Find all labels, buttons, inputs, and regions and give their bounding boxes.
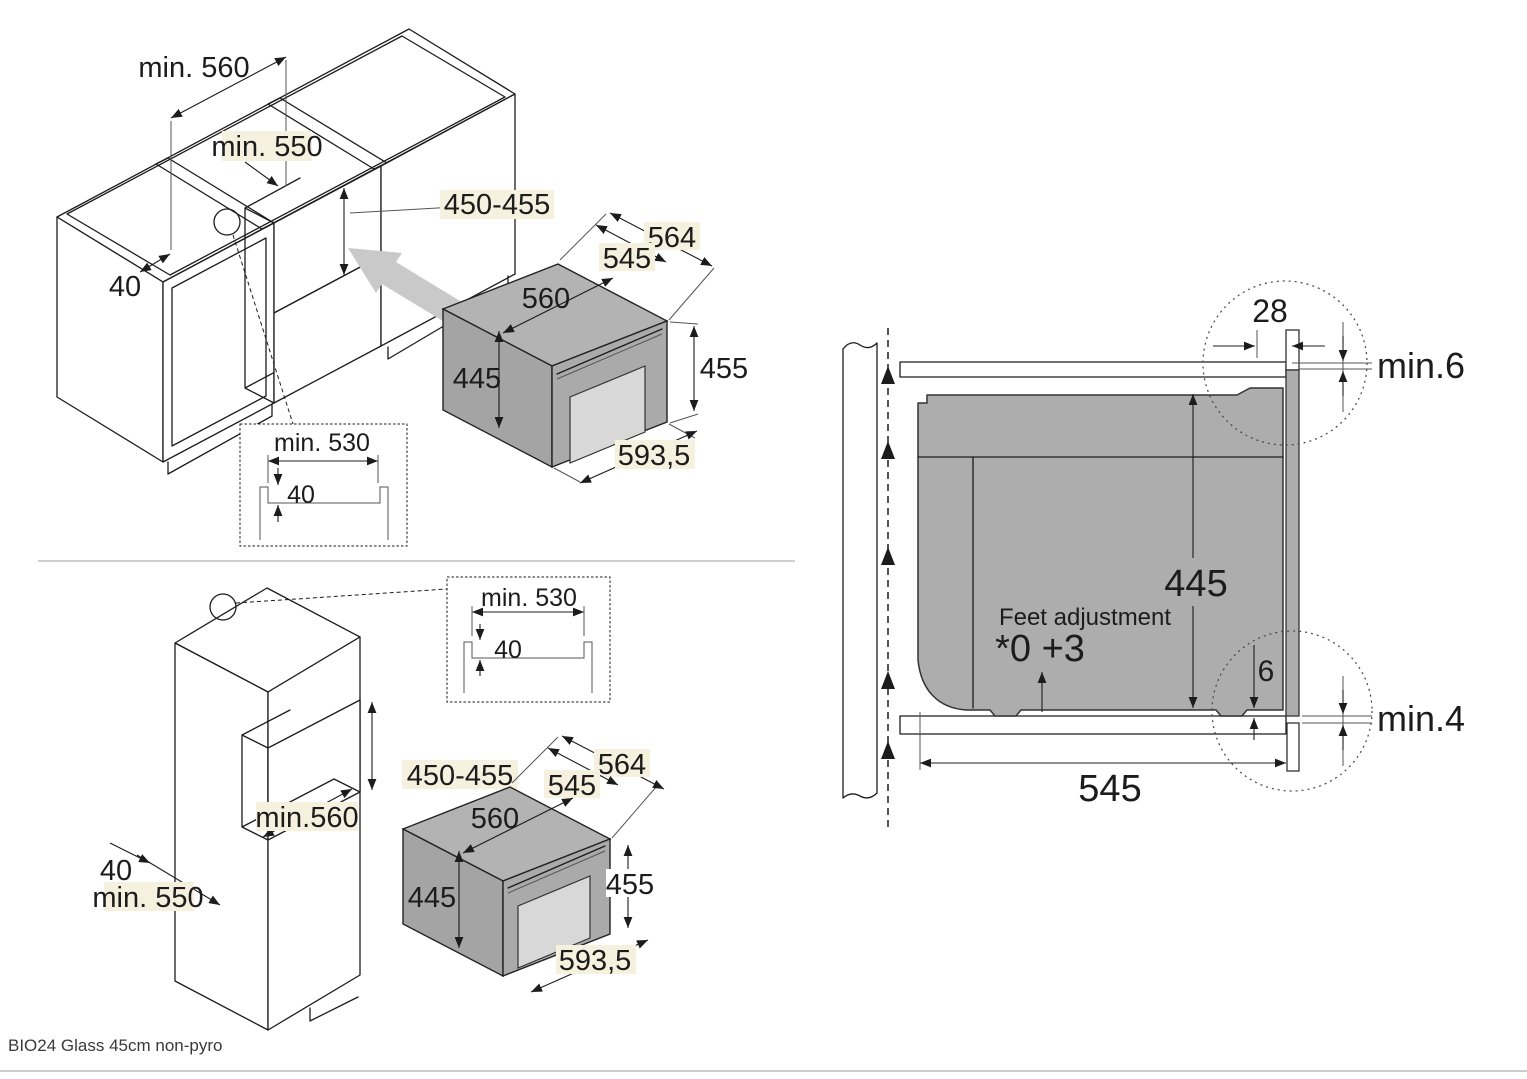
installation-drawing-page: min. 560 min. 550 450-455 40 min. 530 40 xyxy=(0,0,1527,1079)
dim-label-min550: min. 550 xyxy=(211,131,322,163)
dim-label-rail40: 40 xyxy=(109,271,141,303)
dim-label-560: 560 xyxy=(522,283,570,315)
installation-drawing: min. 560 min. 550 450-455 40 min. 530 40 xyxy=(0,0,1527,1079)
dim-label-445: 445 xyxy=(408,882,456,914)
feet-adjustment-values: *0 +3 xyxy=(995,628,1085,670)
dim-label-min4: min.4 xyxy=(1377,698,1465,739)
dim-label-445: 445 xyxy=(453,363,501,395)
oven-door-top-edge xyxy=(1286,330,1299,370)
dim-label-min560: min. 560 xyxy=(138,52,249,84)
dim-label-455: 455 xyxy=(606,869,654,901)
feet-adjustment-label: Feet adjustment xyxy=(999,604,1171,631)
ext-line xyxy=(669,268,714,320)
tall-cabinet-left-side xyxy=(175,643,268,1030)
ext-line xyxy=(554,468,580,482)
dim-label-545: 545 xyxy=(603,243,651,275)
dim-label-niche-width: min.560 xyxy=(255,802,358,834)
dim-label-545: 545 xyxy=(548,770,596,802)
dim-label-niche-height: 450-455 xyxy=(444,189,550,221)
ext-line xyxy=(670,414,698,423)
dim-label-445: 445 xyxy=(1164,563,1227,605)
model-caption: BIO24 Glass 45cm non-pyro xyxy=(8,1036,222,1055)
dim-label-564: 564 xyxy=(648,222,696,254)
inset-label-min530: min. 530 xyxy=(481,584,577,612)
ext-line xyxy=(612,786,657,838)
dim-label-5935: 593,5 xyxy=(559,945,632,977)
dim-label-545: 545 xyxy=(1078,768,1141,810)
rail-detail-inset-top: min. 530 40 xyxy=(240,424,407,546)
oven-door-bottom-edge xyxy=(1287,723,1299,771)
dim-label-28: 28 xyxy=(1252,293,1288,329)
dim-label-niche-height: 450-455 xyxy=(407,760,513,792)
dim-label-5935: 593,5 xyxy=(618,440,691,472)
dim-label-455: 455 xyxy=(700,353,748,385)
ext-line xyxy=(670,322,698,324)
inset-label-min530: min. 530 xyxy=(274,429,370,457)
inset-label-40: 40 xyxy=(287,481,315,509)
dim-label-564: 564 xyxy=(598,749,646,781)
dim-label-560: 560 xyxy=(471,803,519,835)
oven-door-front xyxy=(1286,370,1299,716)
ext-line xyxy=(669,424,695,438)
bottom-shelf xyxy=(900,716,1286,734)
dim-label-min6: min.6 xyxy=(1377,345,1465,386)
inset-label-40: 40 xyxy=(494,636,522,664)
dim-label-6: 6 xyxy=(1258,655,1275,688)
rail-detail-inset-bottom: min. 530 40 xyxy=(447,577,610,702)
worktop xyxy=(900,362,1286,377)
side-section-view: 28 min.6 445 Feet adjustment *0 +3 6 min… xyxy=(843,281,1465,830)
wall xyxy=(843,343,877,798)
dim-label-min550: min. 550 xyxy=(92,882,203,914)
